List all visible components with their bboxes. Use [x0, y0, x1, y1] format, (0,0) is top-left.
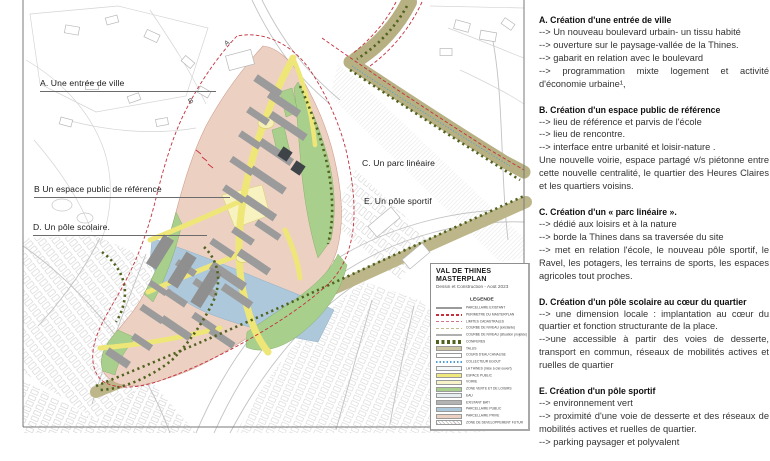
section-text-line: --> lieu de référence et parvis de l'éco… — [539, 116, 769, 129]
section-heading: A. Création d'une entrée de ville — [539, 13, 769, 26]
map-label-b-leader — [34, 197, 230, 198]
section-text-line: --> programmation mixte logement et acti… — [539, 65, 769, 91]
legend-item-label: COURS D'EAU CANALISE — [466, 354, 506, 357]
legend-item-label: TALUS — [466, 347, 476, 350]
legend-swatch — [436, 387, 462, 392]
legend-item-label: EXISTANT BATI — [466, 401, 490, 404]
legend-swatch — [436, 340, 462, 344]
section-text-line: --> borde la Thines dans sa traversée du… — [539, 231, 769, 244]
legend-item-label: PARCELLAIRE PRIVE — [466, 414, 499, 417]
legend-swatch — [436, 334, 462, 335]
legend-header: LEGENDE — [470, 297, 516, 302]
section-heading: E. Création d'un pôle sportif — [539, 384, 769, 397]
legend-item: COURS D'EAU CANALISE — [436, 352, 526, 359]
legend-item: VOIRIE — [436, 379, 526, 386]
section-c: C. Création d'un « parc linéaire ».--> d… — [539, 205, 769, 283]
legend-item-label: ESPACE PUBLIC — [466, 374, 492, 377]
section-text-line: --> lieu de rencontre. — [539, 128, 769, 141]
legend-swatch — [436, 307, 462, 308]
legend-swatch — [436, 373, 462, 378]
section-a: A. Création d'une entrée de ville--> Un … — [539, 13, 769, 91]
section-text-line: --> proximité d'une voie de desserte et … — [539, 410, 769, 436]
legend-title-line2: MASTERPLAN — [436, 276, 526, 284]
legend-swatch — [436, 314, 462, 315]
legend-item-label: ZONE VERTE ET DE LOISIRS — [466, 387, 512, 390]
map-marker-a: A. — [223, 38, 232, 47]
legend-swatch — [436, 361, 462, 362]
legend-item-label: PERIMETRE DU MASTERPLAN — [466, 313, 514, 316]
legend-item-label: VOIRIE — [466, 381, 477, 384]
legend-item: ZONE VERTE ET DE LOISIRS — [436, 386, 526, 393]
legend-item-label: PARCELLAIRE EXISTANT — [466, 306, 505, 309]
section-text-line: --> Un nouveau boulevard urbain- un tiss… — [539, 26, 769, 39]
legend-item: PARCELLAIRE EXISTANT — [436, 305, 526, 312]
section-heading: B. Création d'un espace public de référe… — [539, 103, 769, 116]
map-label-d: D. Un pôle scolaire. — [33, 222, 110, 232]
map-label-a-leader — [40, 91, 216, 92]
legend-swatch — [436, 407, 462, 412]
section-text-line: --> une dimension locale : implantation … — [539, 308, 769, 334]
legend-item: COURBE DE NIVEAU (situation projetée) — [436, 332, 526, 339]
legend-item: COURBE DE NIVEAU (existante) — [436, 325, 526, 332]
legend-panel: VAL DE THINES MASTERPLAN Dessin et Const… — [430, 263, 530, 431]
map-label-d-leader — [33, 235, 207, 236]
legend-item: LA THINES (mise à ciel ouvert) — [436, 365, 526, 372]
section-d: D. Création d'un pôle scolaire au cœur d… — [539, 295, 769, 373]
legend-swatch — [436, 321, 462, 322]
legend-item: LIMITES CADASTRALES — [436, 318, 526, 325]
map-label-c: C. Un parc linéaire — [362, 158, 435, 168]
legend-item-label: COLLECTEUR EGOUT — [466, 360, 501, 363]
section-text-line: --> gabarit en relation avec le boulevar… — [539, 52, 769, 65]
legend-item: TALUS — [436, 345, 526, 352]
map-label-e: E. Un pôle sportif — [364, 196, 432, 206]
section-b: B. Création d'un espace public de référe… — [539, 103, 769, 193]
legend-item-label: PARCELLAIRE PUBLIC — [466, 408, 501, 411]
section-text-line: --> environnement vert — [539, 397, 769, 410]
legend-swatch — [436, 346, 462, 351]
section-heading: C. Création d'un « parc linéaire ». — [539, 205, 769, 218]
legend-swatch — [436, 366, 462, 371]
legend-items: PARCELLAIRE EXISTANTPERIMETRE DU MASTERP… — [436, 305, 526, 427]
legend-item: PARCELLAIRE PRIVE — [436, 413, 526, 420]
legend-swatch — [436, 393, 462, 398]
section-text-line: -->une accessible à partir des voies de … — [539, 333, 769, 372]
legend-item: EXISTANT BATI — [436, 399, 526, 406]
legend-item-label: EAU — [466, 394, 473, 397]
legend-item-label: COURBE DE NIVEAU (existante) — [466, 327, 515, 330]
legend-item-label: CONIFERES — [466, 340, 485, 343]
legend-item: PARCELLAIRE PUBLIC — [436, 406, 526, 413]
legend-item: ESPACE PUBLIC — [436, 372, 526, 379]
map-marker-b: B — [187, 97, 195, 106]
map-label-a: A. Une entrée de ville — [40, 78, 124, 88]
section-text-line: --> ouverture sur le paysage-vallée de l… — [539, 39, 769, 52]
legend-title-line1: VAL DE THINES — [436, 268, 526, 276]
legend-item-label: COURBE DE NIVEAU (situation projetée) — [466, 333, 527, 336]
section-text-line: --> parking paysager et polyvalent — [539, 436, 769, 449]
section-e: E. Création d'un pôle sportif--> environ… — [539, 384, 769, 449]
legend-swatch — [436, 328, 462, 329]
legend-item: EAU — [436, 392, 526, 399]
text-column: A. Création d'une entrée de ville--> Un … — [539, 13, 769, 461]
legend-item-label: ZONE DE DEVELOPPEMENT FUTUR — [466, 421, 523, 424]
section-text-line: --> dédié aux loisirs et à la nature — [539, 218, 769, 231]
legend-item: ZONE DE DEVELOPPEMENT FUTUR — [436, 419, 526, 426]
legend-item: CONIFERES — [436, 338, 526, 345]
legend-swatch — [436, 400, 462, 405]
section-heading: D. Création d'un pôle scolaire au cœur d… — [539, 295, 769, 308]
section-text-line: Une nouvelle voirie, espace partagé v/s … — [539, 154, 769, 193]
legend-subtitle: Dessin et Construction - Août 2023 — [436, 285, 506, 290]
section-text-line: --> interface entre urbanité et loisir-n… — [539, 141, 769, 154]
legend-item: PERIMETRE DU MASTERPLAN — [436, 311, 526, 318]
legend-swatch — [436, 414, 462, 419]
legend-swatch — [436, 420, 462, 425]
legend-swatch — [436, 380, 462, 385]
legend-item-label: LIMITES CADASTRALES — [466, 320, 504, 323]
legend-swatch — [436, 353, 462, 358]
section-text-line: --> met en relation l'école, le nouveau … — [539, 244, 769, 283]
legend-item: COLLECTEUR EGOUT — [436, 359, 526, 366]
map-label-b: B Un espace public de référence — [34, 184, 162, 194]
legend-item-label: LA THINES (mise à ciel ouvert) — [466, 367, 512, 370]
